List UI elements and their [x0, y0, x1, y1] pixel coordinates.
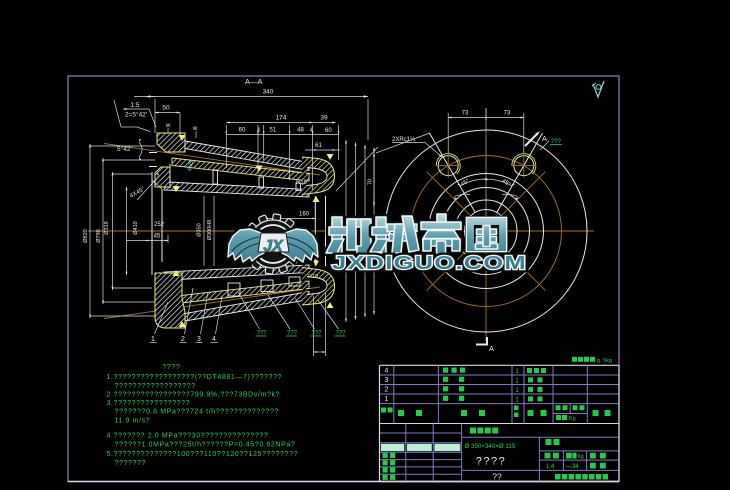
svg-text:11.9 m/s?: 11.9 m/s?: [115, 418, 151, 425]
svg-text:2: 2: [385, 387, 389, 394]
svg-text:60: 60: [325, 128, 332, 134]
svg-text:1: 1: [515, 396, 519, 403]
svg-text:Ø319: Ø319: [104, 221, 110, 234]
svg-text:340: 340: [263, 89, 274, 96]
svg-text:1: 1: [515, 368, 519, 375]
svg-text:Ø350: Ø350: [197, 223, 203, 236]
svg-text:??????????????????: ??????????????????: [115, 383, 196, 390]
svg-text:??????1.0MPa???25t/h??????P=0.: ??????1.0MPa???25t/h??????P=0.45?0.62NPa…: [115, 442, 296, 449]
svg-text:4.??????? 2.0 MPa???30????????: 4.??????? 2.0 MPa???30???????????????: [107, 433, 269, 440]
svg-text:A: A: [489, 344, 494, 353]
svg-text:4: 4: [212, 336, 216, 343]
svg-text:A—A: A—A: [245, 77, 263, 86]
svg-text:A: A: [542, 134, 547, 143]
svg-text:JX: JX: [263, 238, 284, 255]
svg-text:1: 1: [385, 396, 389, 403]
svg-text:Ø410: Ø410: [133, 221, 139, 234]
svg-text:174: 174: [276, 115, 287, 122]
svg-text:????: ????: [162, 362, 180, 371]
svg-text:1:5: 1:5: [130, 102, 139, 109]
svg-text:Ø790: Ø790: [96, 229, 102, 242]
svg-text:4: 4: [385, 368, 389, 375]
svg-text:3: 3: [385, 377, 389, 384]
svg-text:??: ??: [492, 472, 502, 482]
svg-text:R19: R19: [296, 180, 308, 186]
svg-text:Ø300H8: Ø300H8: [207, 220, 213, 241]
svg-text:61: 61: [315, 143, 322, 149]
svg-text:73: 73: [462, 111, 469, 117]
svg-text:R19: R19: [308, 274, 318, 280]
svg-text:???????0.8 MPa???724 t/h??????: ???????0.8 MPa???724 t/h??????????????: [115, 409, 279, 416]
svg-text:1:4: 1:4: [546, 464, 555, 470]
svg-text:3.?????????????????: 3.?????????????????: [107, 400, 191, 407]
svg-text:—34: —34: [566, 464, 579, 470]
svg-text:51: 51: [270, 128, 277, 134]
svg-text:5.??????????????100???110??120: 5.??????????????100???110??120??125?????…: [107, 451, 299, 458]
svg-text:1: 1: [515, 387, 519, 394]
svg-text:2XRc1¼: 2XRc1¼: [392, 137, 416, 143]
svg-text:5°42': 5°42': [117, 145, 132, 153]
svg-text:73: 73: [504, 111, 511, 117]
svg-text:3: 3: [197, 336, 201, 343]
svg-text:Kg: Kg: [569, 416, 576, 422]
svg-text:50: 50: [162, 105, 170, 112]
svg-text:w: w: [192, 126, 198, 132]
svg-text:Ø 350×340×Ø 115: Ø 350×340×Ø 115: [465, 443, 516, 450]
svg-text:1.??????????????????(??DT4881—: 1.??????????????????(??DT4881—7)???????: [107, 374, 283, 381]
svg-text:4: 4: [257, 128, 260, 134]
svg-text:2: 2: [181, 336, 185, 343]
svg-text:160: 160: [299, 212, 310, 218]
svg-text:252: 252: [154, 222, 165, 228]
svg-text:70: 70: [368, 179, 374, 185]
svg-text:Kg: Kg: [578, 454, 584, 460]
svg-text:???????: ???????: [115, 460, 147, 467]
svg-text:4: 4: [310, 128, 313, 134]
svg-text:45: 45: [154, 234, 161, 240]
svg-text:JXDIGUO.COM: JXDIGUO.COM: [332, 252, 527, 273]
svg-text:60: 60: [239, 128, 246, 134]
svg-text:1: 1: [515, 377, 519, 384]
svg-text:Ø820: Ø820: [83, 229, 89, 242]
svg-text:48: 48: [297, 128, 304, 134]
svg-text:2=5°42': 2=5°42': [125, 111, 147, 119]
svg-text:????: ????: [476, 456, 506, 468]
svg-text:39: 39: [320, 115, 328, 122]
svg-text:1: 1: [151, 336, 155, 343]
svg-text:g. 5kg: g. 5kg: [597, 358, 612, 364]
svg-text:2.?????????????????799.9%,???7: 2.?????????????????799.9%,???73BDv/m?k?: [107, 392, 281, 399]
